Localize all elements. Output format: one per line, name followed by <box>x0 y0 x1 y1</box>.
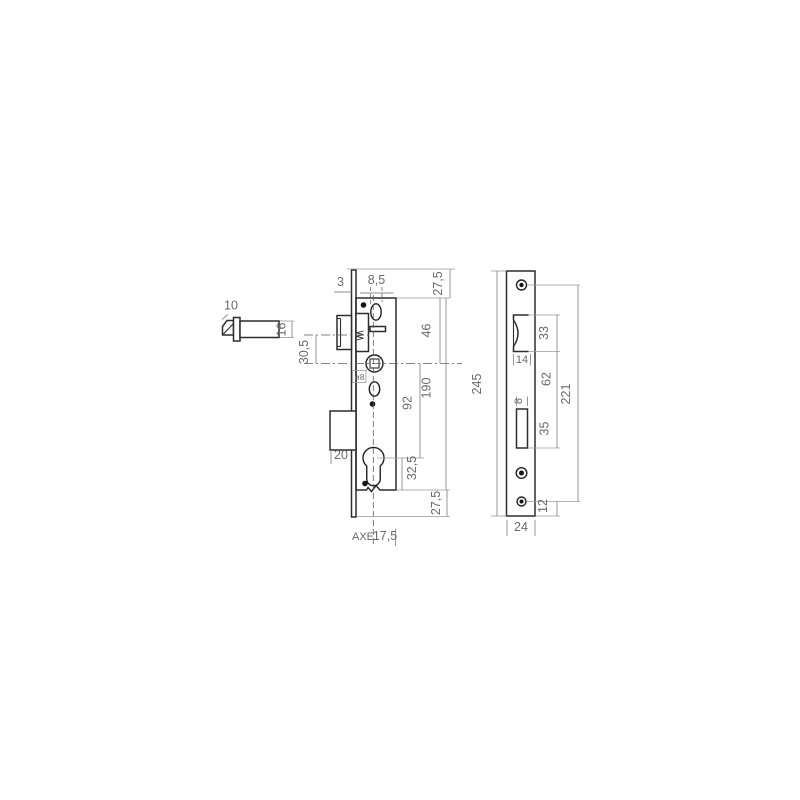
spindle-dia-label: ø8 <box>355 372 365 382</box>
hole-offset-label: 8,5 <box>368 273 385 287</box>
strike-plate <box>507 271 536 516</box>
oval-hole-mid <box>369 382 379 396</box>
technical-drawing-page: 10 16 ø8 20 <box>0 0 800 800</box>
follower-bar <box>370 327 386 332</box>
bolt-cutout <box>517 409 528 448</box>
plate-width-label: 24 <box>514 520 528 534</box>
latch-detail-view: 10 16 <box>222 299 294 342</box>
strike-height-label: 245 <box>470 374 484 395</box>
bottom-margin-label: 27,5 <box>429 491 443 515</box>
strike-screw-top-center <box>519 283 523 287</box>
spindle-cylinder-label: 92 <box>401 396 415 410</box>
top-to-spindle-label: 46 <box>420 324 434 338</box>
screw-span-label: 221 <box>559 384 573 405</box>
latch-width-label: 10 <box>224 299 238 313</box>
axis-value-label: 17,5 <box>373 529 397 543</box>
latch-head <box>337 316 352 350</box>
latch-spindle-label: 30,5 <box>297 340 311 364</box>
case-side-box <box>330 411 356 450</box>
latch-flange <box>234 318 241 342</box>
screw-dot-mid <box>370 401 376 407</box>
cutout-gap-label: 62 <box>540 372 554 386</box>
faceplate-thickness-label: 3 <box>337 275 344 289</box>
screw-dot-bottom <box>362 481 368 487</box>
strike-screw-mid-center <box>519 471 524 476</box>
cylinder-bottom-label: 32,5 <box>405 456 419 480</box>
latch-width-leader <box>222 315 228 320</box>
lock-body-view: ø8 20 3 8,5 27,5 46 30,5 190 92 <box>297 269 462 546</box>
case-height-label: 190 <box>420 378 434 399</box>
screw-dot-top <box>361 302 367 308</box>
latch-body <box>240 321 279 338</box>
bolt-width-label: 8 <box>513 398 525 404</box>
top-margin-label: 27,5 <box>431 271 445 295</box>
latch-height-label: 16 <box>275 323 289 337</box>
lock-dimension-drawing: 10 16 ø8 20 <box>0 0 800 800</box>
screw-bottom-label: 12 <box>536 499 550 513</box>
strike-plate-view: 245 33 14 62 8 35 12 221 24 <box>470 271 580 536</box>
oval-hole-top <box>371 304 381 320</box>
box-depth-label: 20 <box>334 448 348 462</box>
axis-word-label: AXE <box>352 531 374 543</box>
latch-cutout-height-label: 33 <box>537 326 551 340</box>
bolt-height-label: 35 <box>538 422 552 436</box>
strike-screw-bottom-center <box>520 500 524 504</box>
latch-cutout-width-label: 14 <box>516 354 528 366</box>
